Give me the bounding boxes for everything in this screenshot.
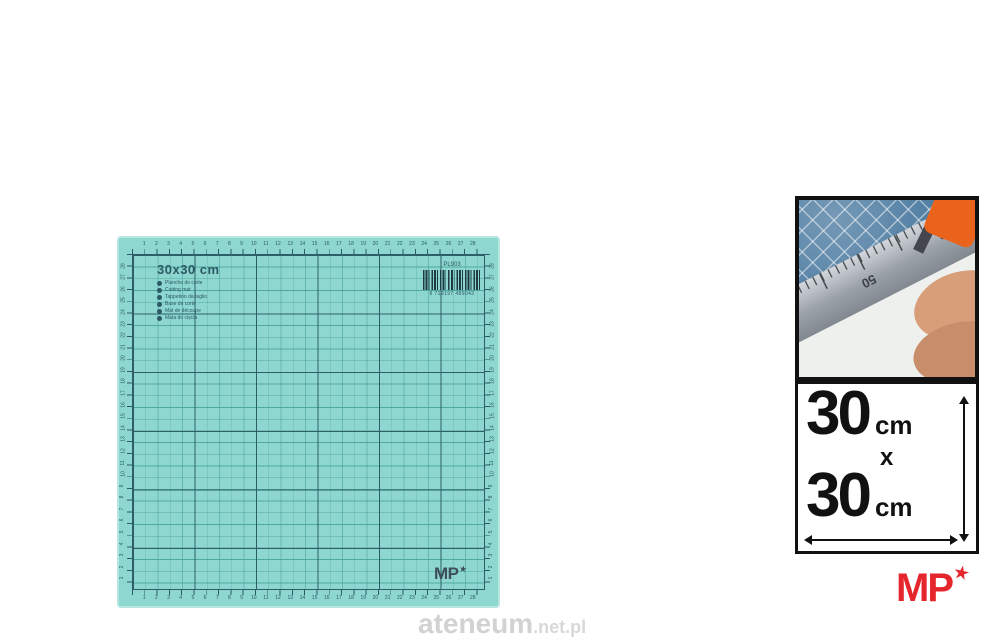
ruler-number: 23 (409, 242, 415, 247)
watermark: ateneum .net.pl (418, 608, 586, 640)
ruler-number: 6 (204, 596, 207, 601)
ruler-number: 24 (421, 242, 427, 247)
ruler-number: 3 (167, 596, 170, 601)
ruler-number: 24 (121, 309, 126, 315)
ruler-number: 25 (121, 298, 126, 304)
ruler-number: 4 (120, 542, 125, 545)
ruler-number: 23 (490, 321, 495, 327)
mat-ruler-right: 1234567891011121314151617181920212223242… (490, 254, 496, 590)
mat-ticks-left (127, 254, 132, 590)
mat-language-list: Plancha de corteCutting matTappetino da … (157, 280, 220, 322)
ruler-number: 17 (490, 390, 495, 396)
barcode-label: PL903 8 719197 489043 (421, 262, 483, 297)
ruler-number: 27 (458, 596, 464, 601)
ruler-number: 13 (490, 437, 495, 443)
ruler-number: 16 (121, 402, 126, 408)
barcode-icon (423, 270, 481, 290)
ruler-number: 17 (121, 390, 126, 396)
ruler-number: 17 (336, 242, 342, 247)
ruler-number: 1 (143, 242, 146, 247)
ruler-number: 10 (251, 596, 257, 601)
ruler-number: 10 (121, 471, 126, 477)
language-list-item: Tappetino da taglio (157, 294, 220, 301)
ruler-number: 3 (167, 242, 170, 247)
product-code: PL903 (421, 262, 483, 269)
ruler-number: 18 (121, 379, 126, 385)
ruler-number: 18 (348, 242, 354, 247)
mat-ticks-bottom (132, 590, 485, 595)
ruler-number: 8 (120, 496, 125, 499)
ruler-number: 21 (385, 242, 391, 247)
vertical-measure-arrow-icon (963, 400, 965, 538)
ruler-number: 25 (434, 596, 440, 601)
ruler-number: 2 (155, 242, 158, 247)
ruler-number: 22 (121, 332, 126, 338)
ruler-number: 28 (490, 263, 495, 269)
ruler-number: 24 (490, 309, 495, 315)
ruler-number: 9 (489, 484, 494, 487)
language-list-item: Plancha de corte (157, 280, 220, 287)
dimension-box: 30 cm x 30 cm (795, 381, 979, 554)
ruler-number: 15 (312, 596, 318, 601)
language-label: Tappetino da taglio (165, 295, 207, 300)
watermark-main: ateneum (418, 608, 533, 640)
mat-ruler-top: 1234567891011121314151617181920212223242… (132, 242, 485, 248)
ruler-number: 7 (120, 508, 125, 511)
ruler-number: 21 (490, 344, 495, 350)
ruler-number: 4 (179, 242, 182, 247)
ruler-number: 5 (120, 531, 125, 534)
ruler-number: 22 (397, 596, 403, 601)
dimension-width-unit: cm (875, 410, 913, 441)
ruler-number: 14 (121, 425, 126, 431)
ruler-number: 19 (490, 367, 495, 373)
horizontal-measure-arrow-icon (808, 539, 954, 541)
ruler-number: 11 (263, 242, 268, 247)
ruler-number: 12 (275, 242, 281, 247)
flag-icon (157, 309, 162, 314)
ruler-number: 22 (397, 242, 403, 247)
ruler-number: 20 (121, 355, 126, 361)
ruler-number: 20 (373, 242, 379, 247)
ruler-number: 5 (489, 531, 494, 534)
ruler-number: 23 (121, 321, 126, 327)
ruler-number: 12 (121, 448, 126, 454)
barcode-number: 8 719197 489043 (421, 291, 483, 297)
ruler-number: 28 (121, 263, 126, 269)
ruler-number: 18 (490, 379, 495, 385)
ruler-number: 18 (348, 596, 354, 601)
ruler-number: 2 (489, 565, 494, 568)
dimension-width-value: 30 (806, 380, 869, 448)
language-label: Mat de découpe (165, 309, 201, 314)
ruler-number: 14 (300, 242, 306, 247)
language-label: Mata do cięcia (165, 316, 197, 321)
ruler-number: 25 (490, 298, 495, 304)
language-list-item: Mat de découpe (157, 308, 220, 315)
language-label: Base de corte (165, 302, 196, 307)
ruler-number: 6 (489, 519, 494, 522)
ruler-number: 25 (434, 242, 440, 247)
ruler-number: 7 (216, 242, 219, 247)
flag-icon (157, 295, 162, 300)
ruler-number: 1 (489, 577, 494, 580)
ruler-number: 2 (155, 596, 158, 601)
dimension-width-row: 30 cm (806, 380, 913, 448)
ruler-number: 5 (191, 596, 194, 601)
ruler-number: 9 (240, 242, 243, 247)
ruler-number: 5 (191, 242, 194, 247)
dimension-height-value: 30 (806, 462, 869, 530)
ruler-number: 19 (360, 242, 366, 247)
ruler-number: 7 (216, 596, 219, 601)
star-icon: ★ (458, 563, 467, 575)
ruler-number: 27 (121, 274, 126, 280)
ruler-number: 23 (409, 596, 415, 601)
ruler-number: 21 (385, 596, 391, 601)
ruler-number: 11 (263, 596, 268, 601)
ruler-number: 13 (121, 437, 126, 443)
ruler-number: 16 (490, 402, 495, 408)
ruler-number: 26 (121, 286, 126, 292)
star-icon: ★ (951, 563, 972, 585)
flag-icon (157, 302, 162, 307)
flag-icon (157, 281, 162, 286)
ruler-number: 11 (490, 460, 495, 465)
inset-photo: 50 100 mm (795, 196, 979, 381)
ruler-number: 1 (120, 577, 125, 580)
ruler-number: 6 (204, 242, 207, 247)
language-label: Cutting mat (165, 288, 191, 293)
mat-info-block: 30x30 cm Plancha de corteCutting matTapp… (157, 262, 220, 322)
ruler-number: 4 (489, 542, 494, 545)
ruler-number: 11 (121, 460, 126, 465)
ruler-number: 13 (287, 596, 293, 601)
mat-mp-logo-text: MP (434, 564, 459, 583)
ruler-number: 14 (490, 425, 495, 431)
ruler-number: 28 (470, 596, 476, 601)
ruler-number: 27 (490, 274, 495, 280)
ruler-number: 16 (324, 242, 330, 247)
ruler-number: 26 (446, 596, 452, 601)
language-list-item: Mata do cięcia (157, 315, 220, 322)
ruler-number: 17 (336, 596, 342, 601)
ruler-number: 27 (458, 242, 464, 247)
dimension-height-row: 30 cm (806, 462, 913, 530)
flag-icon (157, 288, 162, 293)
ruler-number: 19 (121, 367, 126, 373)
dimension-height-unit: cm (875, 492, 913, 523)
ruler-number: 24 (421, 596, 427, 601)
ruler-number: 3 (489, 554, 494, 557)
ruler-number: 9 (240, 596, 243, 601)
ruler-number: 13 (287, 242, 293, 247)
cutting-mat: 1234567891011121314151617181920212223242… (117, 236, 500, 608)
ruler-number: 21 (121, 344, 126, 350)
ruler-label-50: 50 (859, 271, 879, 291)
watermark-suffix: .net.pl (533, 617, 586, 638)
ruler-number: 7 (489, 508, 494, 511)
mat-ruler-left: 1234567891011121314151617181920212223242… (121, 254, 127, 590)
ruler-number: 28 (470, 242, 476, 247)
mat-size-title: 30x30 cm (157, 262, 220, 277)
ruler-number: 2 (120, 565, 125, 568)
language-list-item: Cutting mat (157, 287, 220, 294)
ruler-number: 9 (120, 484, 125, 487)
ruler-number: 3 (120, 554, 125, 557)
ruler-number: 8 (228, 242, 231, 247)
ruler-number: 10 (490, 471, 495, 477)
ruler-number: 15 (490, 413, 495, 419)
mat-mp-logo: MP★ (434, 564, 466, 584)
ruler-number: 4 (179, 596, 182, 601)
ruler-number: 15 (312, 242, 318, 247)
ruler-number: 20 (373, 596, 379, 601)
ruler-number: 20 (490, 355, 495, 361)
language-list-item: Base de corte (157, 301, 220, 308)
ruler-number: 26 (490, 286, 495, 292)
language-label: Plancha de corte (165, 281, 203, 286)
ruler-number: 14 (300, 596, 306, 601)
ruler-number: 1 (143, 596, 146, 601)
ruler-number: 26 (446, 242, 452, 247)
mp-brand-logo: MP★ (896, 568, 969, 608)
ruler-number: 19 (360, 596, 366, 601)
mp-brand-logo-text: MP (896, 566, 952, 610)
mat-ticks-top (132, 249, 485, 254)
ruler-number: 8 (228, 596, 231, 601)
product-image: 1234567891011121314151617181920212223242… (0, 0, 1000, 641)
ruler-number: 8 (489, 496, 494, 499)
flag-icon (157, 316, 162, 321)
ruler-number: 12 (490, 448, 495, 454)
ruler-number: 22 (490, 332, 495, 338)
mat-ruler-bottom: 1234567891011121314151617181920212223242… (132, 596, 485, 602)
ruler-number: 16 (324, 596, 330, 601)
ruler-number: 6 (120, 519, 125, 522)
ruler-number: 10 (251, 242, 257, 247)
ruler-number: 15 (121, 413, 126, 419)
ruler-number: 12 (275, 596, 281, 601)
